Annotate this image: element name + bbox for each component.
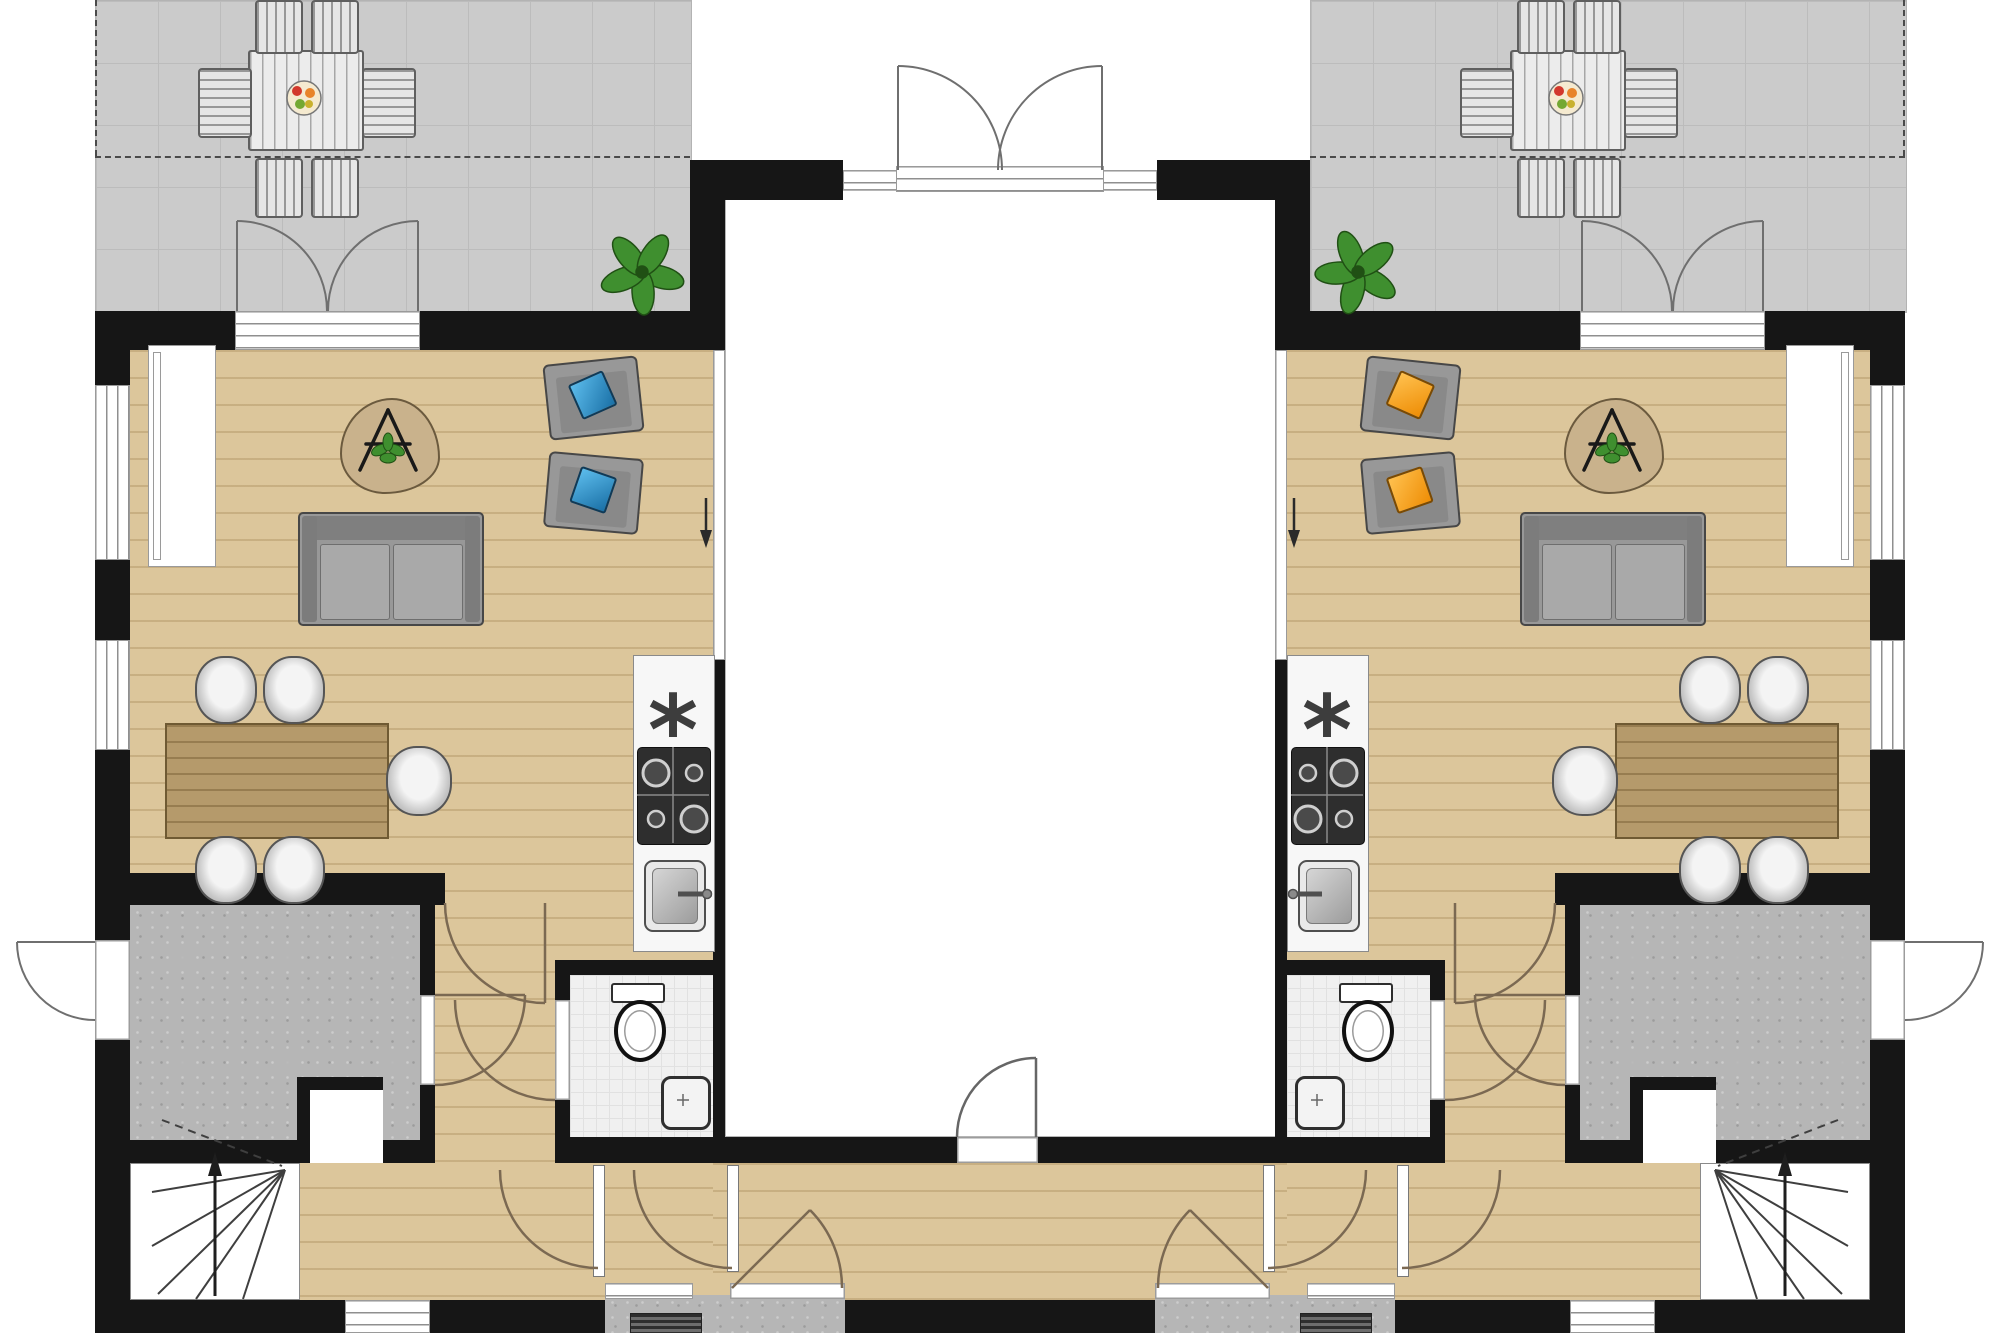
corridor-door-leaf-right [1397, 1165, 1409, 1277]
dining-chair [1747, 836, 1809, 904]
front-door-threshold-right [1155, 1283, 1270, 1299]
wall [1157, 160, 1275, 200]
french-door-threshold-left [235, 311, 420, 350]
sofa-cushion [1615, 544, 1685, 620]
vestibule-door-leaf-right [1263, 1165, 1275, 1272]
doormat-right [1300, 1313, 1372, 1333]
sink-basin [1306, 868, 1352, 924]
sofa-right [1520, 512, 1706, 626]
sofa-armrest [1687, 516, 1702, 622]
shaft-right [1630, 1077, 1716, 1163]
dining-chair [195, 656, 257, 724]
kitchen-appliance-right: * [1287, 655, 1367, 747]
armchair-right-1 [1359, 355, 1461, 441]
dining-chair [263, 836, 325, 904]
storage-room-floor-right [1580, 905, 1870, 1140]
doormat-left [630, 1313, 702, 1333]
window [1870, 385, 1905, 560]
exterior-side-door-left [95, 940, 130, 1040]
outdoor-chair [1460, 68, 1514, 138]
sofa-left [298, 512, 484, 626]
terrace-edge-dashed-right [1903, 0, 1905, 156]
outdoor-chair [311, 0, 359, 54]
toilet-left [614, 1000, 666, 1062]
front-door-threshold-left [730, 1283, 845, 1299]
corridor-door-leaf-left [593, 1165, 605, 1277]
stairs-area-right [1700, 1163, 1870, 1300]
wall [130, 1140, 435, 1163]
dining-chair [1679, 836, 1741, 904]
window-sill-panel-left [148, 345, 216, 567]
glazed-partition-right [1275, 350, 1287, 660]
stove-right [1291, 747, 1365, 845]
window [95, 385, 130, 560]
kitchen-sink-right [1298, 860, 1360, 932]
vestibule-door-leaf-left [727, 1165, 739, 1272]
sofa-back [303, 516, 479, 540]
storage-door-right [1565, 995, 1580, 1085]
sofa-armrest [465, 516, 480, 622]
outdoor-chair [255, 0, 303, 54]
sofa-cushion [393, 544, 463, 620]
wall [725, 160, 843, 200]
window [1570, 1300, 1655, 1333]
outdoor-chair [362, 68, 416, 138]
outdoor-chair [1573, 0, 1621, 54]
outdoor-chair [198, 68, 252, 138]
sofa-back [1525, 516, 1701, 540]
outdoor-dining-table-right [1510, 50, 1626, 151]
corridor-floor-center [713, 1163, 1287, 1300]
window-sill-panel-right [1786, 345, 1854, 567]
central-hall-rear-door-opening [957, 1137, 1038, 1163]
wall [1565, 1140, 1870, 1163]
wall [555, 1137, 725, 1163]
central-hall-double-door-threshold [896, 166, 1104, 192]
toilet-right [1342, 1000, 1394, 1062]
dining-chair [195, 836, 257, 904]
stairs-area-left [130, 1163, 300, 1300]
french-door-threshold-right [1580, 311, 1765, 350]
wall [1275, 960, 1445, 975]
outdoor-chair [1517, 158, 1565, 218]
terrace-edge-dashed-left [95, 0, 97, 156]
entrance-sidelight-right [1307, 1283, 1395, 1299]
roof-overhang-dashed-line-left [95, 156, 690, 158]
dining-chair [1679, 656, 1741, 724]
central-hall-east-wall [1275, 200, 1287, 1137]
outdoor-chair [1573, 158, 1621, 218]
dining-chair [263, 656, 325, 724]
wall [555, 960, 725, 975]
wall [1275, 1137, 1445, 1163]
armchair-left-2 [543, 451, 644, 535]
outdoor-chair [1624, 68, 1678, 138]
bathroom-door-left [555, 1000, 570, 1100]
window [345, 1300, 430, 1333]
dining-table-left [165, 723, 389, 839]
sofa-armrest [1524, 516, 1539, 622]
window [1870, 640, 1905, 750]
dining-chair [386, 746, 452, 816]
bathroom-door-right [1430, 1000, 1445, 1100]
central-hall-floor [725, 190, 1287, 1137]
sink-basin [652, 868, 698, 924]
window [95, 640, 130, 750]
outdoor-chair [255, 158, 303, 218]
sofa-cushion [320, 544, 390, 620]
dining-table-right [1615, 723, 1839, 839]
kitchen-sink-left [644, 860, 706, 932]
sofa-armrest [302, 516, 317, 622]
shaft-left [297, 1077, 383, 1163]
sofa-cushion [1542, 544, 1612, 620]
dining-chair [1747, 656, 1809, 724]
exterior-side-door-right [1870, 940, 1905, 1040]
armchair-right-2 [1360, 451, 1461, 535]
kitchen-appliance-left: * [633, 655, 713, 747]
washbasin-right [1295, 1076, 1345, 1130]
dining-chair [1552, 746, 1618, 816]
washbasin-left [661, 1076, 711, 1130]
glazed-partition-left [713, 350, 725, 660]
outdoor-chair [311, 158, 359, 218]
entrance-sidelight-left [605, 1283, 693, 1299]
outdoor-dining-table-left [248, 50, 364, 151]
stove-left [637, 747, 711, 845]
floor-plan-canvas: * * [0, 0, 2000, 1333]
armchair-left-1 [542, 355, 644, 441]
outdoor-chair [1517, 0, 1565, 54]
storage-door-left [420, 995, 435, 1085]
